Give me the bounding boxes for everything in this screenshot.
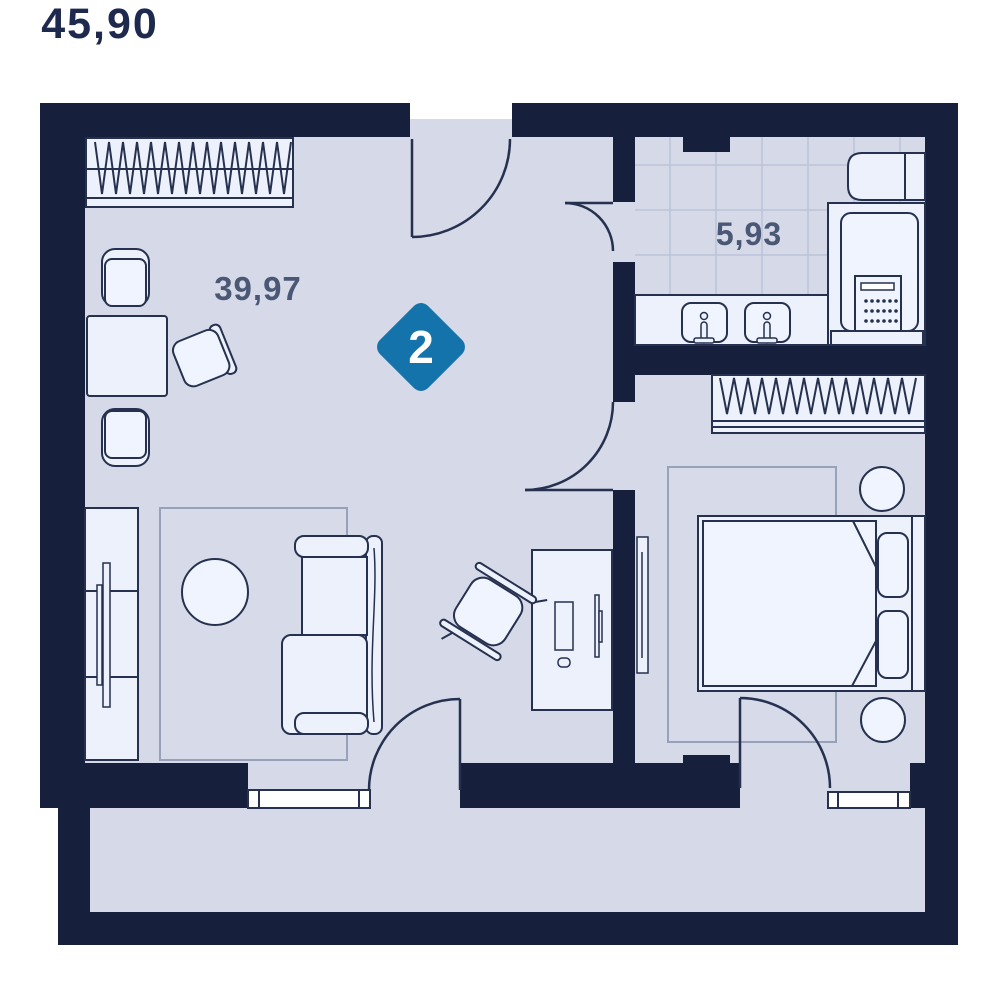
pillow — [878, 533, 908, 597]
double-bed — [698, 516, 925, 691]
window-recess-floor — [248, 763, 370, 790]
partition-wall — [613, 490, 635, 763]
dining-chair — [102, 249, 149, 306]
tv — [103, 563, 110, 707]
partition-wall — [613, 137, 635, 202]
floor-plan-drawing — [0, 0, 1000, 1000]
tv-stand — [85, 508, 138, 760]
floor-plan-page: 39,97 5,93 2 45,90 — [0, 0, 1000, 1000]
vent-shaft — [683, 137, 730, 152]
sink-drain — [701, 313, 708, 320]
balcony-floor — [90, 808, 925, 912]
balcony-door-gap-floor — [740, 763, 830, 808]
wall-tab — [683, 755, 730, 763]
wall-segment — [925, 103, 958, 945]
mouse — [558, 658, 570, 667]
monitor-stand — [599, 611, 602, 642]
wardrobe — [86, 138, 293, 207]
tv-bracket — [97, 585, 102, 685]
sink — [682, 303, 727, 343]
bathroom-wall — [635, 346, 925, 375]
keyboard — [555, 602, 573, 650]
partition-wall — [613, 262, 635, 402]
dining-table — [87, 316, 167, 396]
nightstand-lamp — [861, 698, 905, 742]
sink — [745, 303, 790, 343]
sofa-armrest — [295, 536, 368, 557]
balcony-door-gap-floor — [370, 763, 460, 808]
entrance-threshold-floor — [410, 119, 512, 139]
sofa-armrest — [295, 713, 368, 734]
vanity-counter — [635, 295, 828, 345]
wall-segment — [512, 103, 958, 137]
dining-chair — [102, 409, 149, 466]
living-room-area-label: 39,97 — [206, 270, 310, 308]
bathroom-area-label: 5,93 — [697, 216, 801, 253]
sink-drain — [764, 313, 771, 320]
wall-segment — [40, 103, 85, 808]
pillow — [878, 611, 908, 678]
living-room-window — [248, 790, 370, 808]
bedroom-wardrobe — [712, 375, 925, 433]
balcony-wall — [58, 912, 958, 945]
coffee-table — [182, 559, 248, 625]
nightstand-lamp — [860, 467, 904, 511]
washing-machine — [828, 203, 925, 345]
wall-segment — [85, 763, 248, 808]
bathroom-shelf — [848, 153, 925, 200]
window-recess-floor — [830, 763, 910, 792]
wall-segment — [910, 763, 925, 808]
bed-sheet — [703, 521, 876, 686]
rooms-count-number: 2 — [373, 299, 469, 395]
wall-segment — [460, 763, 740, 808]
wall-segment — [40, 103, 410, 137]
sofa-seat — [302, 557, 367, 635]
